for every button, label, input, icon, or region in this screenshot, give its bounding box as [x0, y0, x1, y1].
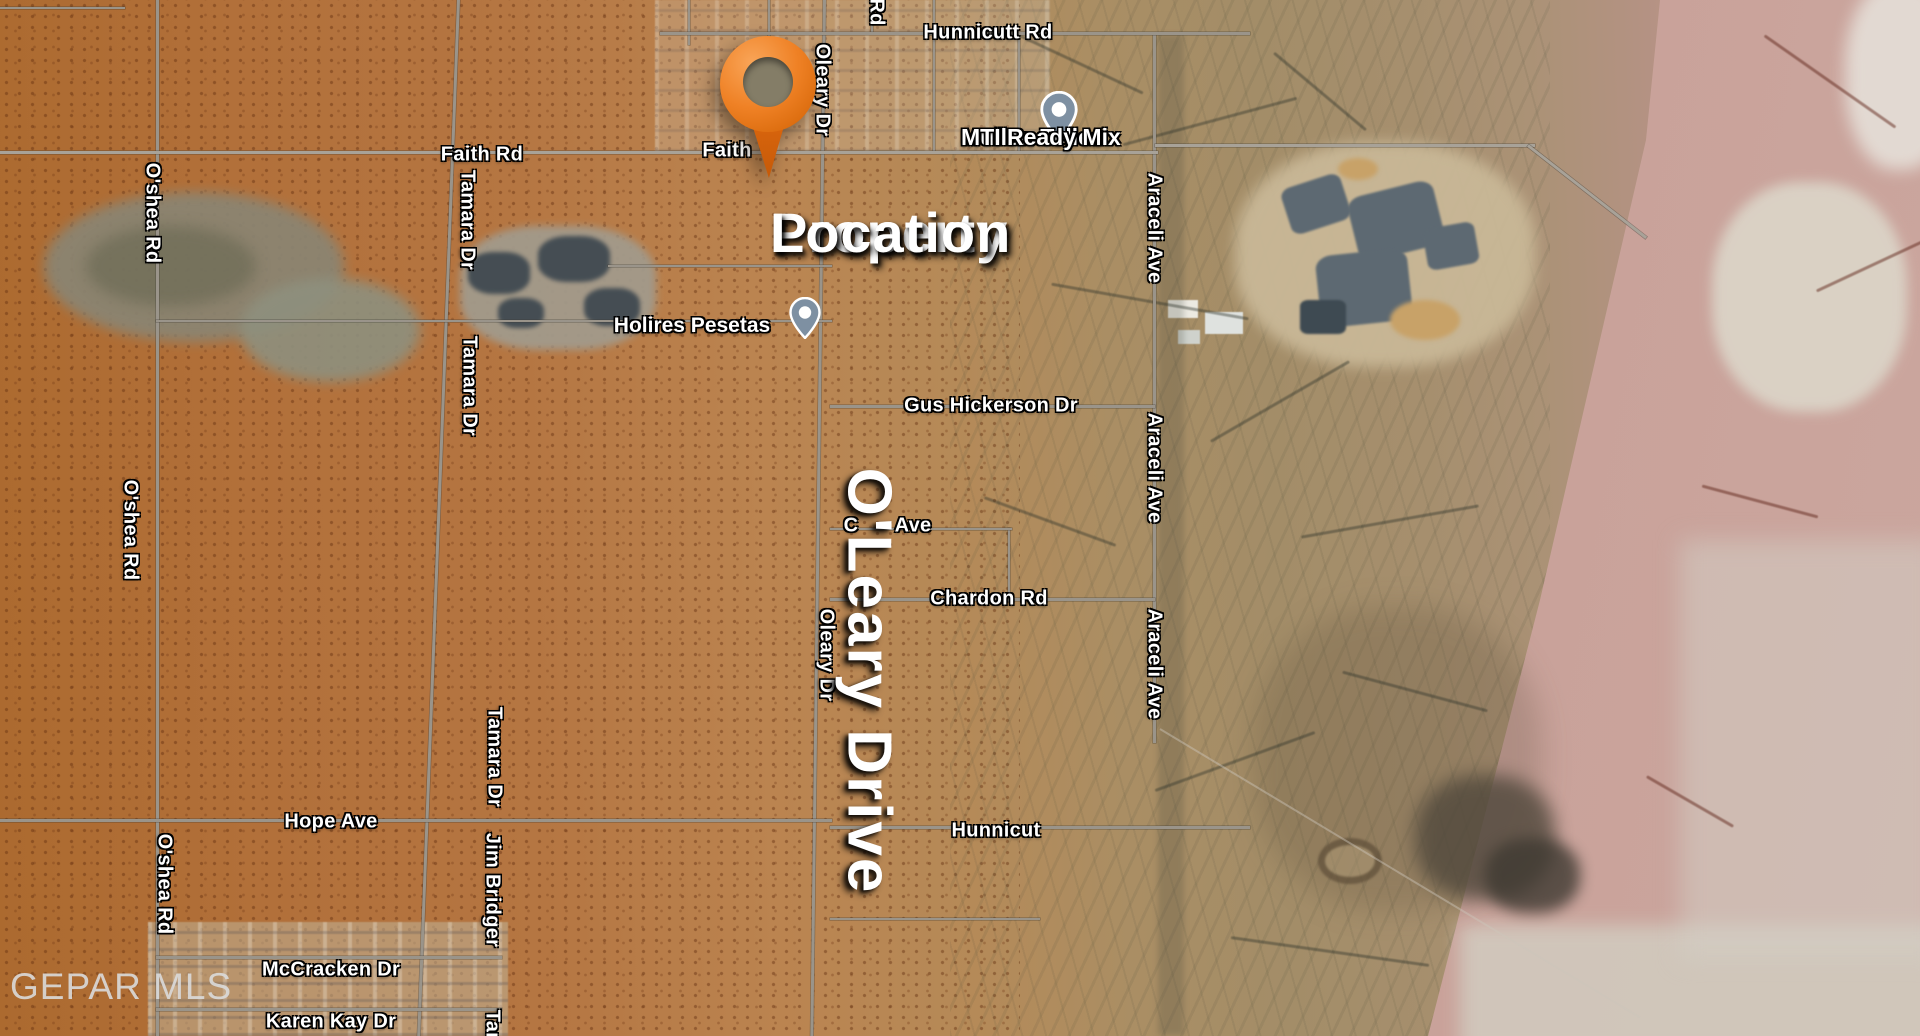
dark-hill: [1485, 838, 1580, 913]
pale-terrain-right: [1680, 540, 1920, 960]
dark-debris: [498, 298, 544, 328]
quarry-pit: [1300, 300, 1346, 334]
grey-field-shadow: [86, 226, 256, 306]
road-segment: [830, 918, 1040, 920]
satellite-map[interactable]: Hunnicutt RdFaith RdFaithGus Hickerson D…: [0, 0, 1920, 1036]
street-label-tamara-dr: Tamara Dr: [456, 170, 479, 270]
dark-debris: [538, 236, 610, 282]
quarry-pit: [1422, 221, 1481, 271]
street-label-araceli-ave: Araceli Ave: [1143, 413, 1166, 524]
grey-field: [240, 278, 420, 382]
street-label-karen-kay-dr: Karen Kay Dr: [266, 1011, 396, 1034]
street-label-o-shea-rd: O'shea Rd: [141, 163, 164, 264]
street-label-gus-hickerson-dr: Gus Hickerson Dr: [904, 395, 1078, 418]
street-label-mccracken-dr: McCracken Dr: [262, 959, 400, 982]
street-label-o-shea-rd: O'shea Rd: [119, 480, 142, 581]
road-faith-east: [1155, 144, 1535, 147]
street-label-hope-ave: Hope Ave: [284, 811, 377, 834]
pesetas-label[interactable]: Holires Pesetas: [614, 313, 770, 339]
road-segment: [608, 265, 832, 267]
street-label-jim-bridger: Jim Bridger: [481, 833, 504, 947]
street-label-faith-rd: Faith Rd: [441, 144, 523, 167]
gepar-mls-watermark: GEPAR MLS: [10, 966, 232, 1008]
oleary-drive-annotation: O'Leary Drive: [834, 468, 905, 895]
street-label-hunnicut: Hunnicut: [951, 820, 1040, 843]
road-faith: [0, 151, 1158, 154]
street-label-faith: Faith: [702, 140, 751, 163]
road-hope: [0, 819, 832, 822]
street-label-o-shea-rd: O'shea Rd: [153, 834, 176, 935]
quarry-mound: [1338, 158, 1378, 180]
road-segment: [688, 0, 690, 45]
street-label-rd: Rd: [865, 0, 888, 26]
property-annotation-line2: Location: [770, 206, 1011, 259]
street-label-tamara-dr: Tamara Dr: [458, 336, 481, 436]
street-label-tam: Tam: [481, 1010, 504, 1036]
quarry-mound: [1390, 300, 1460, 340]
pesetas-business-pin[interactable]: [789, 297, 821, 344]
street-label-tamara-dr: Tamara Dr: [483, 707, 506, 807]
street-label-araceli-ave: Araceli Ave: [1143, 609, 1166, 720]
quarry-spill: [1712, 182, 1907, 412]
mullen-telles-line2: MTI Ready Mix: [961, 124, 1121, 150]
street-label-araceli-ave: Araceli Ave: [1143, 173, 1166, 284]
road-segment: [0, 7, 125, 9]
street-label-chardon-rd: Chardon Rd: [930, 588, 1047, 611]
street-label-hunnicutt-rd: Hunnicutt Rd: [923, 22, 1052, 45]
pin-hole: [743, 57, 793, 107]
